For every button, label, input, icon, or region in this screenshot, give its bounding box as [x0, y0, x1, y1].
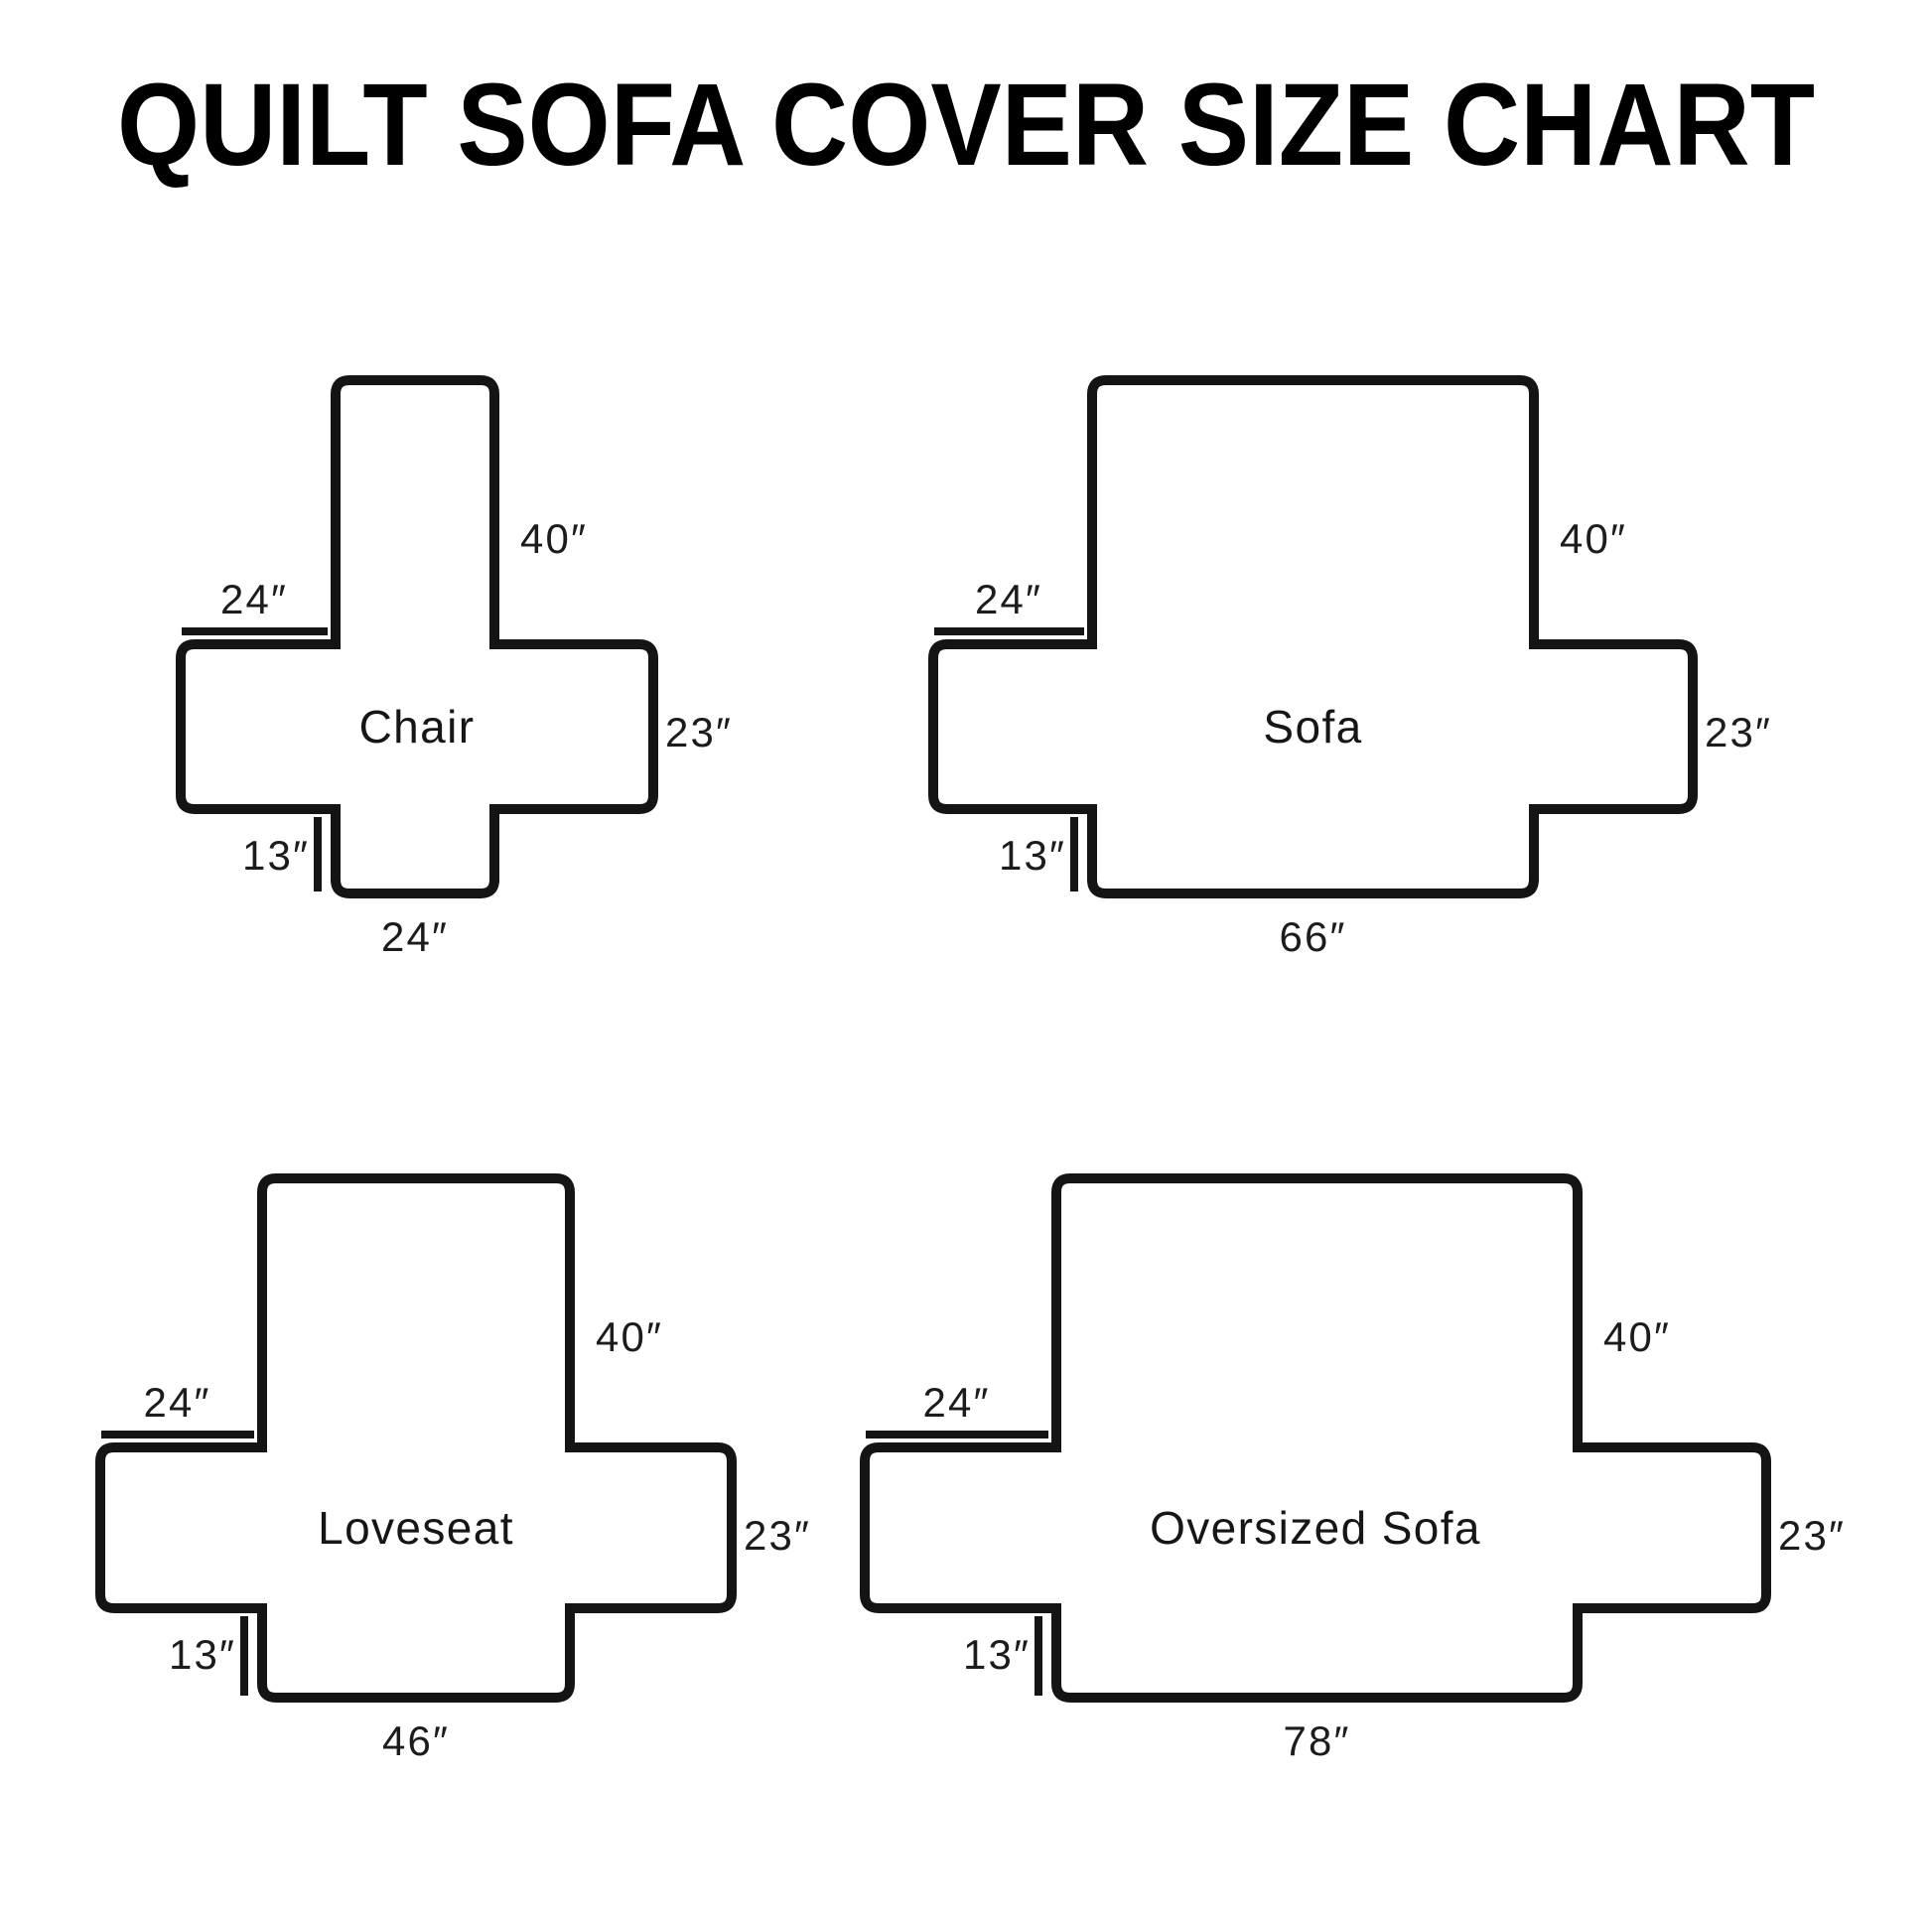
- chair-side-height-label: 23″: [665, 709, 733, 756]
- loveseat-skirt-height-label: 13″: [169, 1631, 236, 1679]
- page-title: QUILT SOFA COVER SIZE CHART: [117, 60, 1815, 191]
- size-chart-page: QUILT SOFA COVER SIZE CHART Chair 40″ 24…: [0, 0, 1932, 1918]
- loveseat-arm-top-width-label: 24″: [144, 1379, 211, 1427]
- sofa-back-height-label: 40″: [1560, 515, 1627, 563]
- sofa-shape-group: [933, 380, 1693, 893]
- oversized-sofa-bottom-width-label: 78″: [1284, 1717, 1351, 1765]
- loveseat-name-label: Loveseat: [318, 1501, 514, 1555]
- oversized-sofa-arm-top-width-label: 24″: [923, 1379, 991, 1427]
- loveseat-side-height-label: 23″: [744, 1512, 811, 1560]
- chair-skirt-height-label: 13″: [242, 832, 310, 880]
- oversized-sofa-shape-group: [865, 1178, 1766, 1698]
- sofa-arm-top-width-label: 24″: [975, 576, 1042, 623]
- chair-bottom-width-label: 24″: [381, 913, 449, 961]
- sofa-name-label: Sofa: [1263, 700, 1362, 753]
- oversized-sofa-skirt-height-label: 13″: [963, 1631, 1031, 1679]
- oversized-sofa-name-label: Oversized Sofa: [1150, 1501, 1481, 1555]
- chair-back-height-label: 40″: [520, 515, 588, 563]
- sofa-cover-outline: [933, 380, 1693, 893]
- chair-arm-top-width-label: 24″: [220, 576, 288, 623]
- loveseat-shape-group: [100, 1178, 732, 1698]
- oversized-sofa-back-height-label: 40″: [1603, 1313, 1671, 1361]
- chair-shape-group: [181, 380, 653, 893]
- sofa-skirt-height-label: 13″: [999, 832, 1066, 880]
- sofa-side-height-label: 23″: [1705, 709, 1772, 756]
- sofa-bottom-width-label: 66″: [1280, 913, 1347, 961]
- loveseat-bottom-width-label: 46″: [382, 1717, 450, 1765]
- chair-cover-outline: [181, 380, 653, 893]
- oversized-sofa-side-height-label: 23″: [1778, 1512, 1846, 1560]
- chair-name-label: Chair: [359, 700, 476, 753]
- loveseat-back-height-label: 40″: [596, 1313, 663, 1361]
